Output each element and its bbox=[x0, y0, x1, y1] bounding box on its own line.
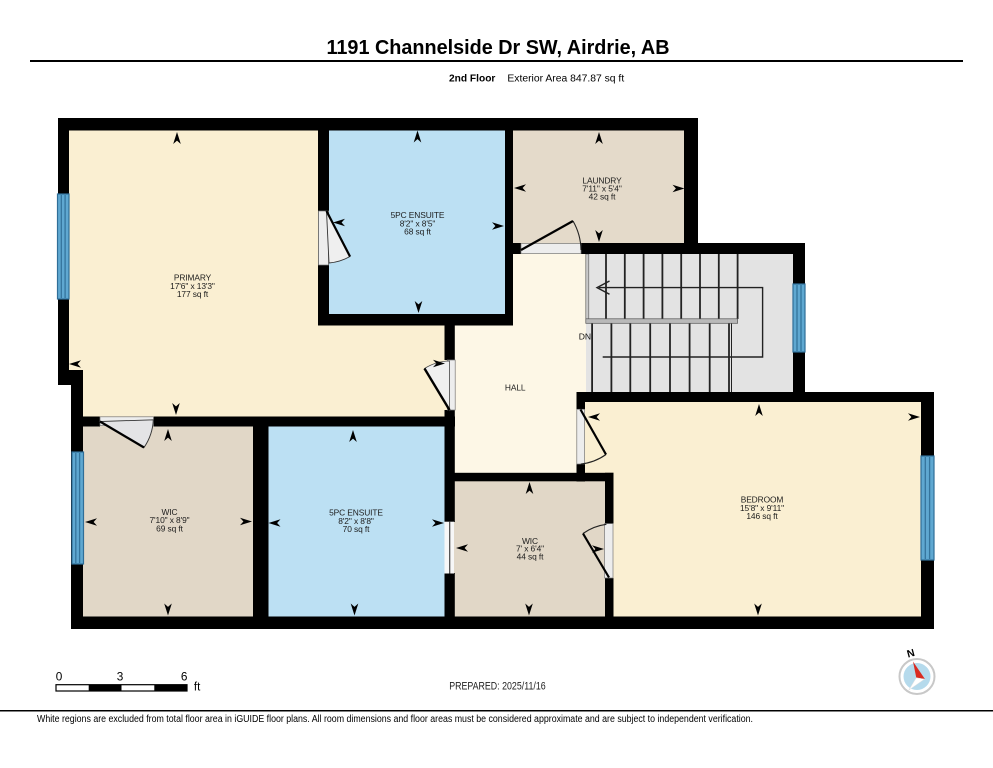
svg-text:3: 3 bbox=[117, 670, 124, 684]
svg-text:44 sq ft: 44 sq ft bbox=[517, 551, 544, 561]
svg-text:PREPARED: 2025/11/16: PREPARED: 2025/11/16 bbox=[449, 680, 546, 692]
svg-text:146 sq ft: 146 sq ft bbox=[746, 511, 778, 521]
svg-text:42 sq ft: 42 sq ft bbox=[589, 192, 616, 202]
svg-text:DN: DN bbox=[579, 332, 591, 342]
svg-text:68 sq ft: 68 sq ft bbox=[404, 227, 431, 237]
svg-text:1191 Channelside Dr SW, Airdri: 1191 Channelside Dr SW, Airdrie, AB bbox=[327, 37, 670, 59]
svg-text:2nd Floor: 2nd Floor bbox=[449, 74, 495, 85]
svg-text:Exterior Area 847.87 sq ft: Exterior Area 847.87 sq ft bbox=[507, 74, 624, 85]
svg-text:HALL: HALL bbox=[505, 382, 526, 392]
svg-text:69 sq ft: 69 sq ft bbox=[156, 523, 183, 533]
svg-text:70 sq ft: 70 sq ft bbox=[343, 524, 370, 534]
svg-text:0: 0 bbox=[56, 670, 63, 684]
svg-text:177 sq ft: 177 sq ft bbox=[177, 289, 209, 299]
svg-text:White regions are excluded fro: White regions are excluded from total fl… bbox=[37, 714, 753, 725]
svg-text:ft: ft bbox=[194, 682, 201, 694]
svg-text:6: 6 bbox=[181, 670, 188, 684]
